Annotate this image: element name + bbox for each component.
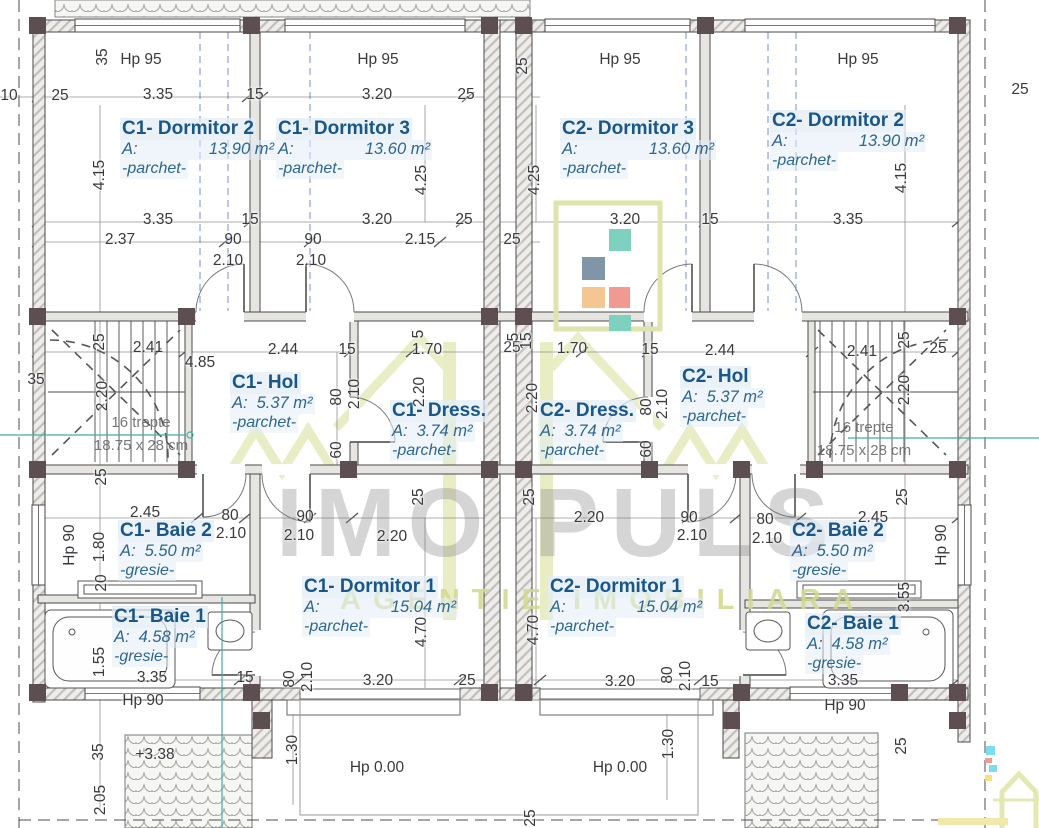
stair-note-line2: 18.75 x 28 cm: [94, 437, 188, 454]
watermark-tagline: AGENTIE IMOBILIARA: [340, 586, 865, 615]
stair-note-line1: 16 trepte: [111, 414, 170, 431]
stair-note-line1: 16 trepte: [834, 419, 893, 436]
balcony-slabs: [287, 689, 713, 815]
watermark-brand: IMO PULS: [276, 474, 841, 571]
corner-logo-icon: [938, 746, 1039, 828]
stair-note-left: 16 trepte 18.75 x 28 cm: [94, 411, 188, 458]
floor-plan: IMO PULS AGENTIE IMOBILIARA 16 trepte 18…: [0, 0, 1039, 828]
stair-note-line2: 18.75 x 28 cm: [817, 442, 911, 459]
stair-note-right: 16 trepte 18.75 x 28 cm: [817, 416, 911, 463]
